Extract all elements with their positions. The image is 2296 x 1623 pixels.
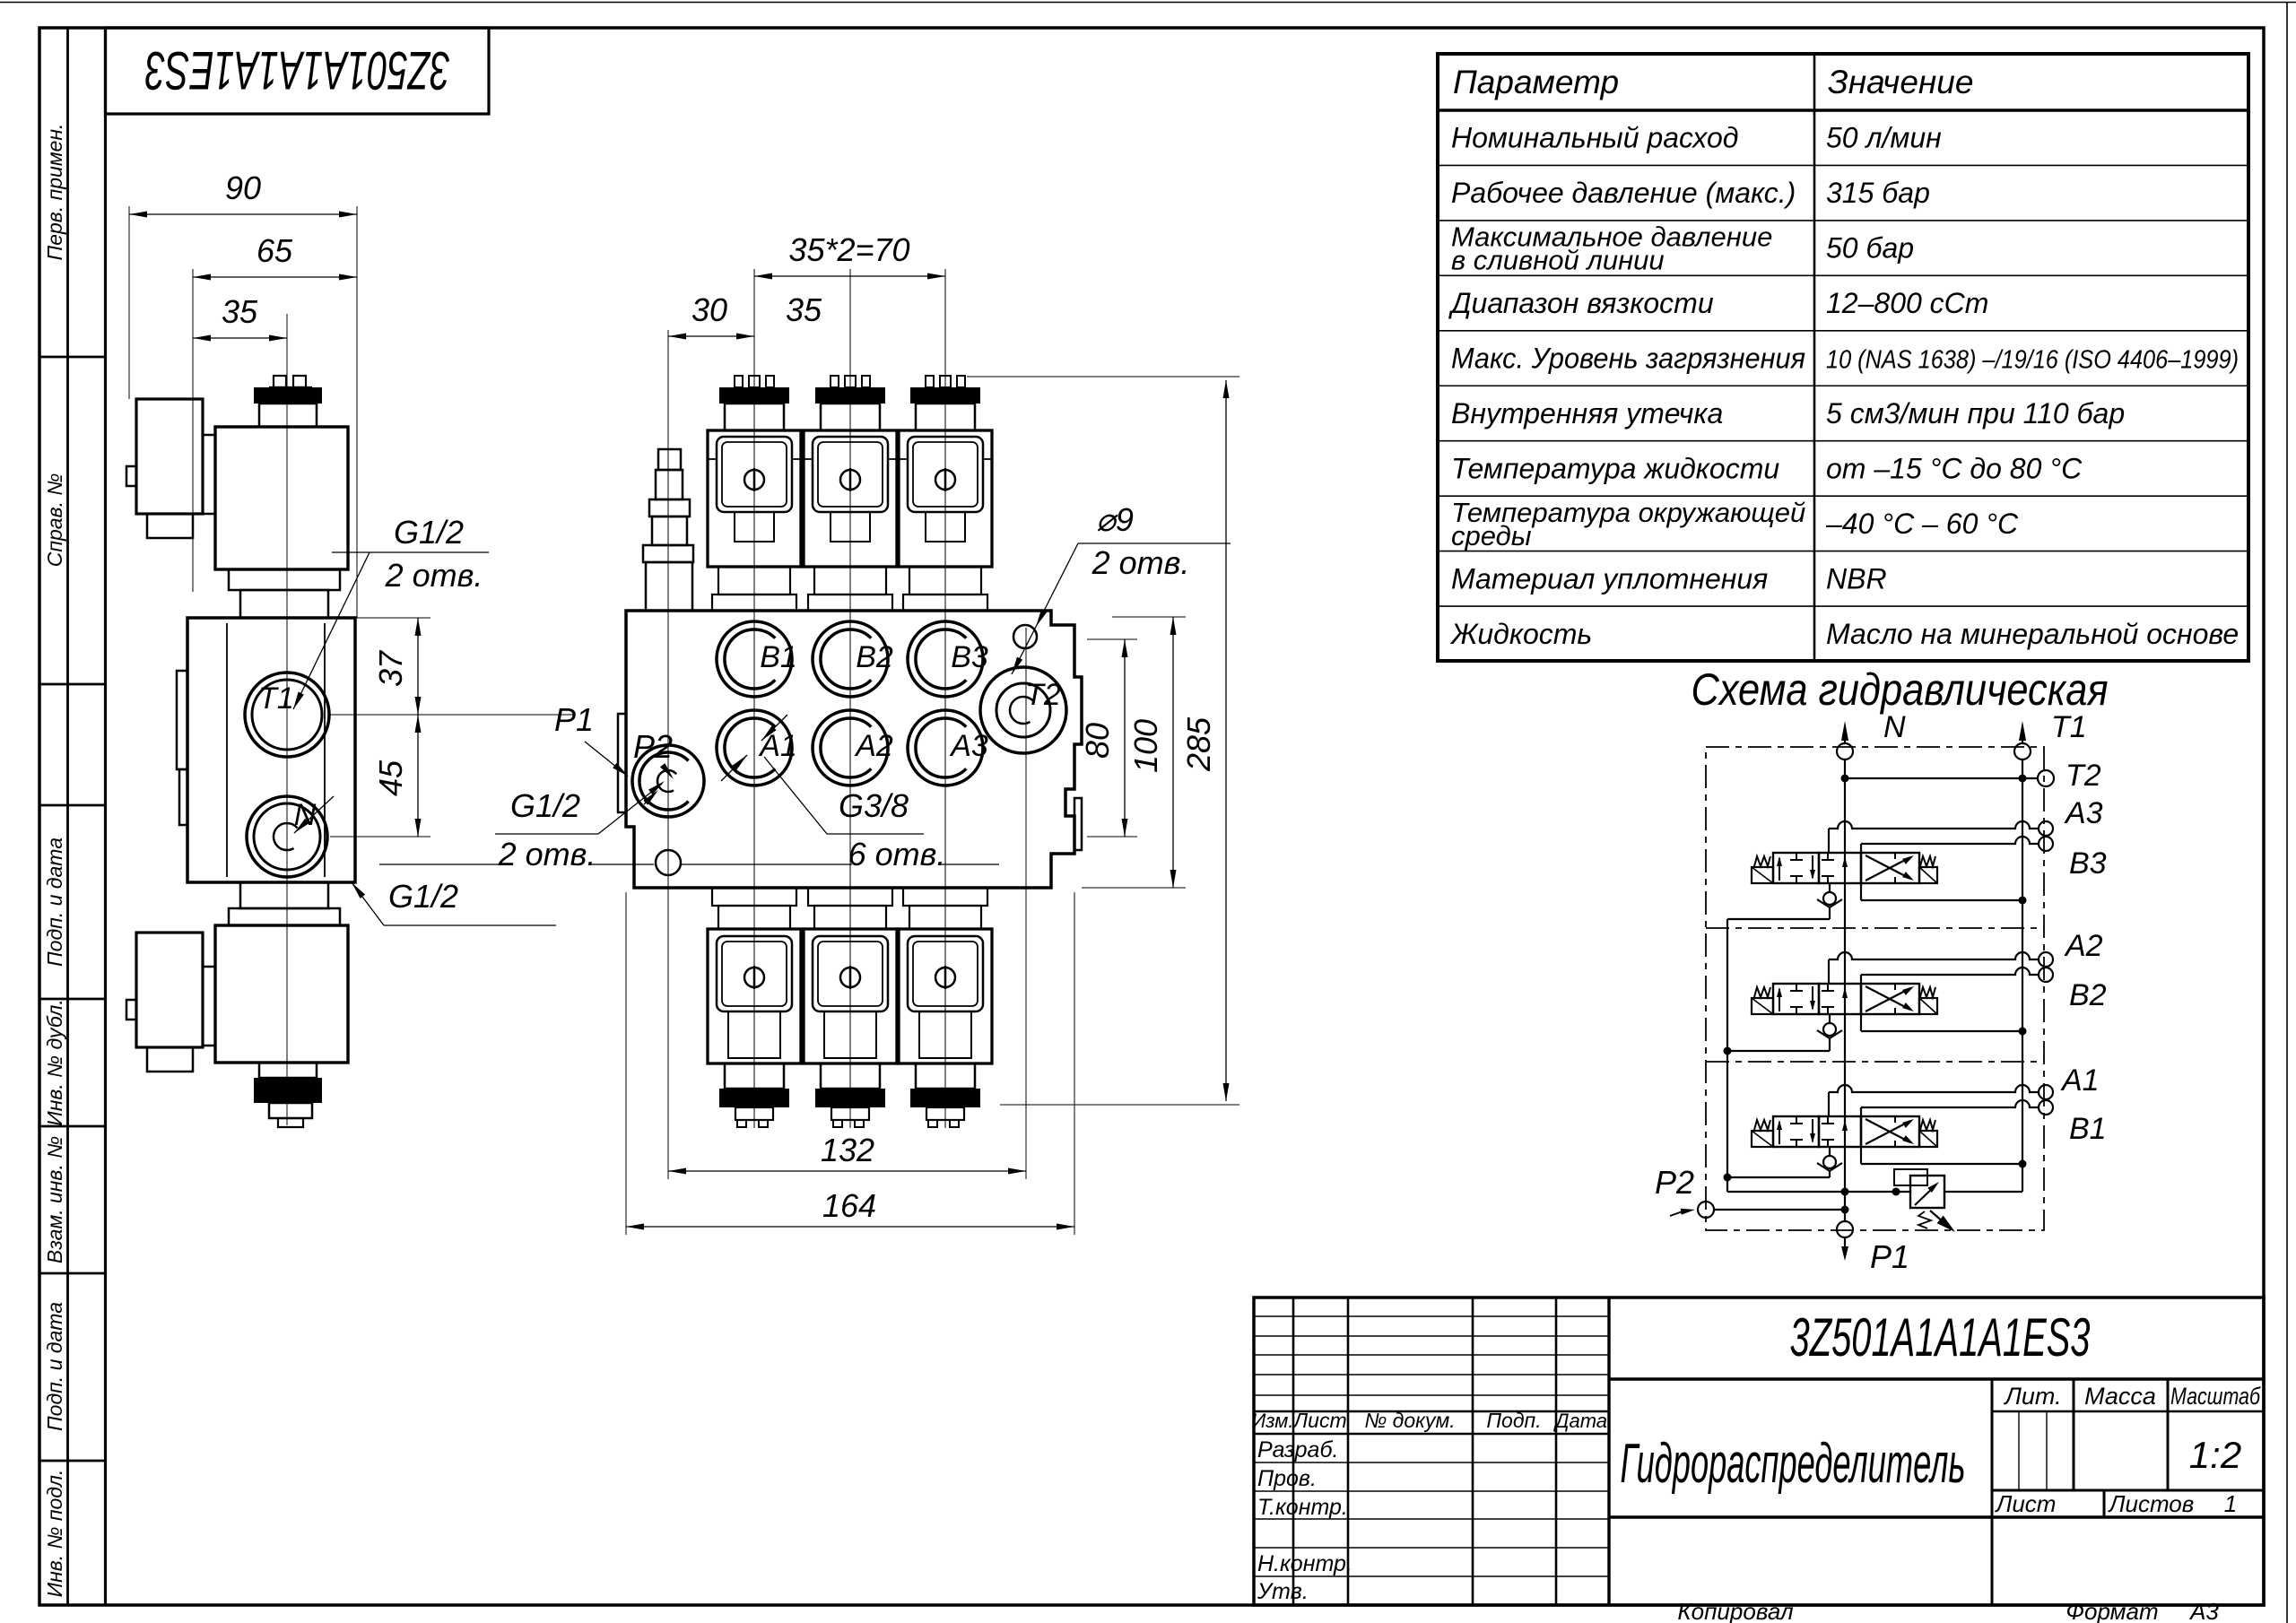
svg-text:Перв. примен.: Перв. примен. [43, 124, 66, 261]
svg-text:30: 30 [691, 291, 727, 328]
svg-text:2 отв.: 2 отв. [385, 557, 483, 594]
svg-text:Гидрораспределитель: Гидрораспределитель [1621, 1433, 1966, 1495]
svg-text:Лист: Лист [1995, 1490, 2057, 1517]
svg-text:G3/8: G3/8 [839, 787, 909, 824]
svg-text:3Z501A1A1A1ES3: 3Z501A1A1A1ES3 [145, 40, 450, 100]
svg-text:Рабочее давление (макс.): Рабочее давление (макс.) [1451, 177, 1796, 209]
svg-text:Копировал: Копировал [1677, 1598, 1794, 1623]
svg-text:90: 90 [225, 169, 261, 206]
svg-text:80: 80 [1079, 723, 1116, 759]
svg-text:Жидкость: Жидкость [1449, 618, 1592, 650]
svg-text:285: 285 [1180, 716, 1217, 772]
svg-text:Внутренняя утечка: Внутренняя утечка [1451, 397, 1723, 430]
svg-text:3Z501A1A1A1ES3: 3Z501A1A1A1ES3 [1790, 1307, 2091, 1367]
svg-text:Дата: Дата [1552, 1410, 1607, 1432]
svg-text:Параметр: Параметр [1453, 64, 1619, 100]
svg-text:Температура жидкости: Температура жидкости [1451, 452, 1779, 484]
svg-text:2 отв.: 2 отв. [1091, 544, 1190, 581]
svg-text:Значение: Значение [1828, 64, 1973, 100]
svg-text:50 л/мин: 50 л/мин [1826, 122, 1942, 154]
svg-text:Изм.: Изм. [1252, 1410, 1294, 1432]
svg-text:T2: T2 [1025, 678, 1061, 712]
svg-text:35: 35 [786, 291, 822, 328]
svg-text:от –15 °С до 80 °С: от –15 °С до 80 °С [1826, 452, 2083, 484]
svg-text:Масло на минеральной основе: Масло на минеральной основе [1826, 618, 2239, 650]
svg-text:Номинальный расход: Номинальный расход [1451, 122, 1738, 154]
svg-text:B1: B1 [2069, 1112, 2107, 1146]
svg-text:315 бар: 315 бар [1826, 177, 1930, 209]
svg-text:2 отв.: 2 отв. [498, 836, 596, 872]
svg-text:G1/2: G1/2 [394, 514, 464, 551]
svg-text:Схема гидравлическая: Схема гидравлическая [1692, 664, 2109, 715]
svg-text:Масштаб: Масштаб [2170, 1383, 2261, 1410]
svg-text:Разраб.: Разраб. [1257, 1437, 1338, 1462]
svg-text:Подп.: Подп. [1486, 1409, 1541, 1432]
svg-text:Утв.: Утв. [1257, 1579, 1309, 1604]
svg-text:Подп. и дата: Подп. и дата [43, 838, 66, 967]
svg-text:A3: A3 [949, 729, 988, 763]
svg-text:A1: A1 [2060, 1063, 2100, 1098]
svg-text:B1: B1 [760, 640, 797, 674]
svg-text:Диапазон вязкости: Диапазон вязкости [1448, 287, 1714, 319]
svg-text:1: 1 [2224, 1490, 2237, 1517]
svg-text:Инв. № дубл.: Инв. № дубл. [43, 999, 66, 1125]
svg-text:T1: T1 [2051, 710, 2087, 744]
svg-text:G1/2: G1/2 [510, 787, 580, 824]
svg-text:P2: P2 [1655, 1164, 1694, 1201]
svg-text:45: 45 [372, 759, 409, 796]
svg-text:B2: B2 [2069, 978, 2107, 1012]
svg-text:A3: A3 [2064, 796, 2103, 830]
svg-text:Пров.: Пров. [1257, 1466, 1317, 1491]
svg-text:G1/2: G1/2 [388, 878, 458, 915]
svg-text:№ докум.: № докум. [1364, 1409, 1455, 1432]
svg-text:A2: A2 [854, 729, 893, 763]
svg-text:132: 132 [821, 1132, 874, 1168]
svg-text:T1: T1 [258, 681, 294, 716]
svg-text:Материал уплотнения: Материал уплотнения [1451, 562, 1768, 595]
svg-text:P1: P1 [554, 701, 594, 738]
svg-text:Лист: Лист [1291, 1409, 1346, 1432]
svg-text:100: 100 [1127, 719, 1164, 773]
svg-text:T2: T2 [2066, 759, 2101, 793]
svg-text:35: 35 [222, 293, 258, 330]
svg-text:12–800 сСт: 12–800 сСт [1826, 287, 1988, 319]
svg-text:Макс. Уровень загрязнения: Макс. Уровень загрязнения [1451, 343, 1805, 375]
svg-text:A1: A1 [758, 729, 797, 763]
svg-text:Лит.: Лит. [2003, 1383, 2061, 1410]
svg-text:в сливной линии: в сливной линии [1451, 245, 1665, 276]
svg-text:50 бар: 50 бар [1826, 232, 1914, 265]
svg-text:NBR: NBR [1826, 562, 1887, 595]
svg-text:164: 164 [822, 1187, 876, 1224]
svg-text:B2: B2 [856, 640, 893, 674]
svg-text:среды: среды [1451, 520, 1532, 551]
svg-text:Н.контр.: Н.контр. [1257, 1551, 1352, 1576]
svg-text:35*2=70: 35*2=70 [788, 231, 909, 268]
svg-text:Взам. инв. №: Взам. инв. № [43, 1136, 66, 1263]
svg-text:10 (NAS 1638) –/19/16 (ISO 440: 10 (NAS 1638) –/19/16 (ISO 4406–1999) [1826, 346, 2239, 375]
svg-text:Инв. № подл.: Инв. № подл. [43, 1470, 66, 1598]
svg-text:A2: A2 [2064, 929, 2103, 963]
svg-text:Формат: Формат [2066, 1598, 2158, 1623]
svg-text:37: 37 [372, 649, 409, 687]
svg-text:N: N [1883, 710, 1906, 744]
svg-text:Масса: Масса [2084, 1383, 2156, 1410]
svg-text:–40 °С – 60 °С: –40 °С – 60 °С [1825, 508, 2019, 540]
svg-text:Справ. №: Справ. № [43, 473, 66, 568]
svg-text:⌀9: ⌀9 [1096, 501, 1134, 538]
svg-text:Подп. и дата: Подп. и дата [43, 1302, 66, 1431]
svg-text:6 отв.: 6 отв. [848, 836, 946, 872]
svg-text:65: 65 [257, 232, 293, 269]
svg-text:B3: B3 [2069, 846, 2107, 881]
svg-text:1:2: 1:2 [2189, 1434, 2241, 1476]
svg-text:5 см3/мин при 110 бар: 5 см3/мин при 110 бар [1826, 397, 2125, 430]
svg-text:P2: P2 [633, 728, 673, 765]
svg-text:Т.контр.: Т.контр. [1257, 1495, 1348, 1520]
svg-text:P1: P1 [1870, 1238, 1909, 1275]
svg-text:Листов: Листов [2108, 1490, 2195, 1517]
svg-text:B3: B3 [951, 640, 988, 674]
svg-text:А3: А3 [2188, 1598, 2219, 1623]
